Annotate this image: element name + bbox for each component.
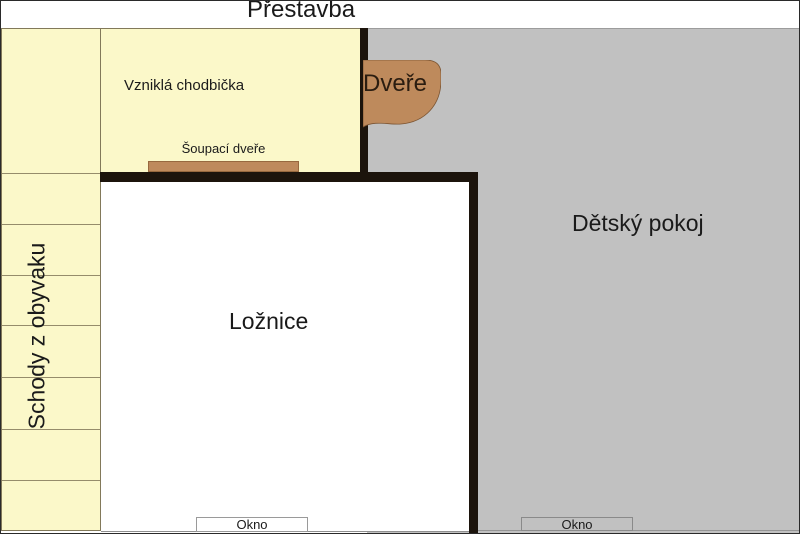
stair-step-line: [2, 429, 100, 430]
kids-room-label: Dětský pokoj: [572, 211, 704, 236]
kids-room-window: Okno: [521, 517, 633, 531]
sliding-door-label: Šoupací dveře: [148, 142, 299, 156]
kids-room-window-label: Okno: [561, 517, 592, 532]
bedroom-window: Okno: [196, 517, 308, 532]
page-title: Přestavba: [247, 0, 355, 23]
stairs-label: Schody z obyvaku: [24, 243, 49, 430]
floor-plan: Šoupací dveře Dveře Přestavba Dětský pok…: [0, 0, 800, 534]
stair-step-line: [2, 275, 100, 276]
stair-step-line: [2, 480, 100, 481]
sliding-door-symbol: [148, 161, 299, 172]
swing-door-label: Dveře: [363, 71, 427, 97]
stair-step-line: [2, 173, 100, 174]
staircase: [1, 28, 101, 531]
bedroom-window-label: Okno: [236, 517, 267, 532]
wall-between-hallway-and-bedroom: [100, 172, 478, 182]
stair-step-line: [2, 377, 100, 378]
bedroom-area: [101, 182, 469, 532]
wall-between-bedroom-and-kids-room: [469, 172, 478, 533]
bedroom-label: Ložnice: [229, 309, 308, 334]
stair-step-line: [2, 325, 100, 326]
stair-step-line: [2, 224, 100, 225]
hallway-label: Vzniklá chodbička: [124, 78, 244, 95]
